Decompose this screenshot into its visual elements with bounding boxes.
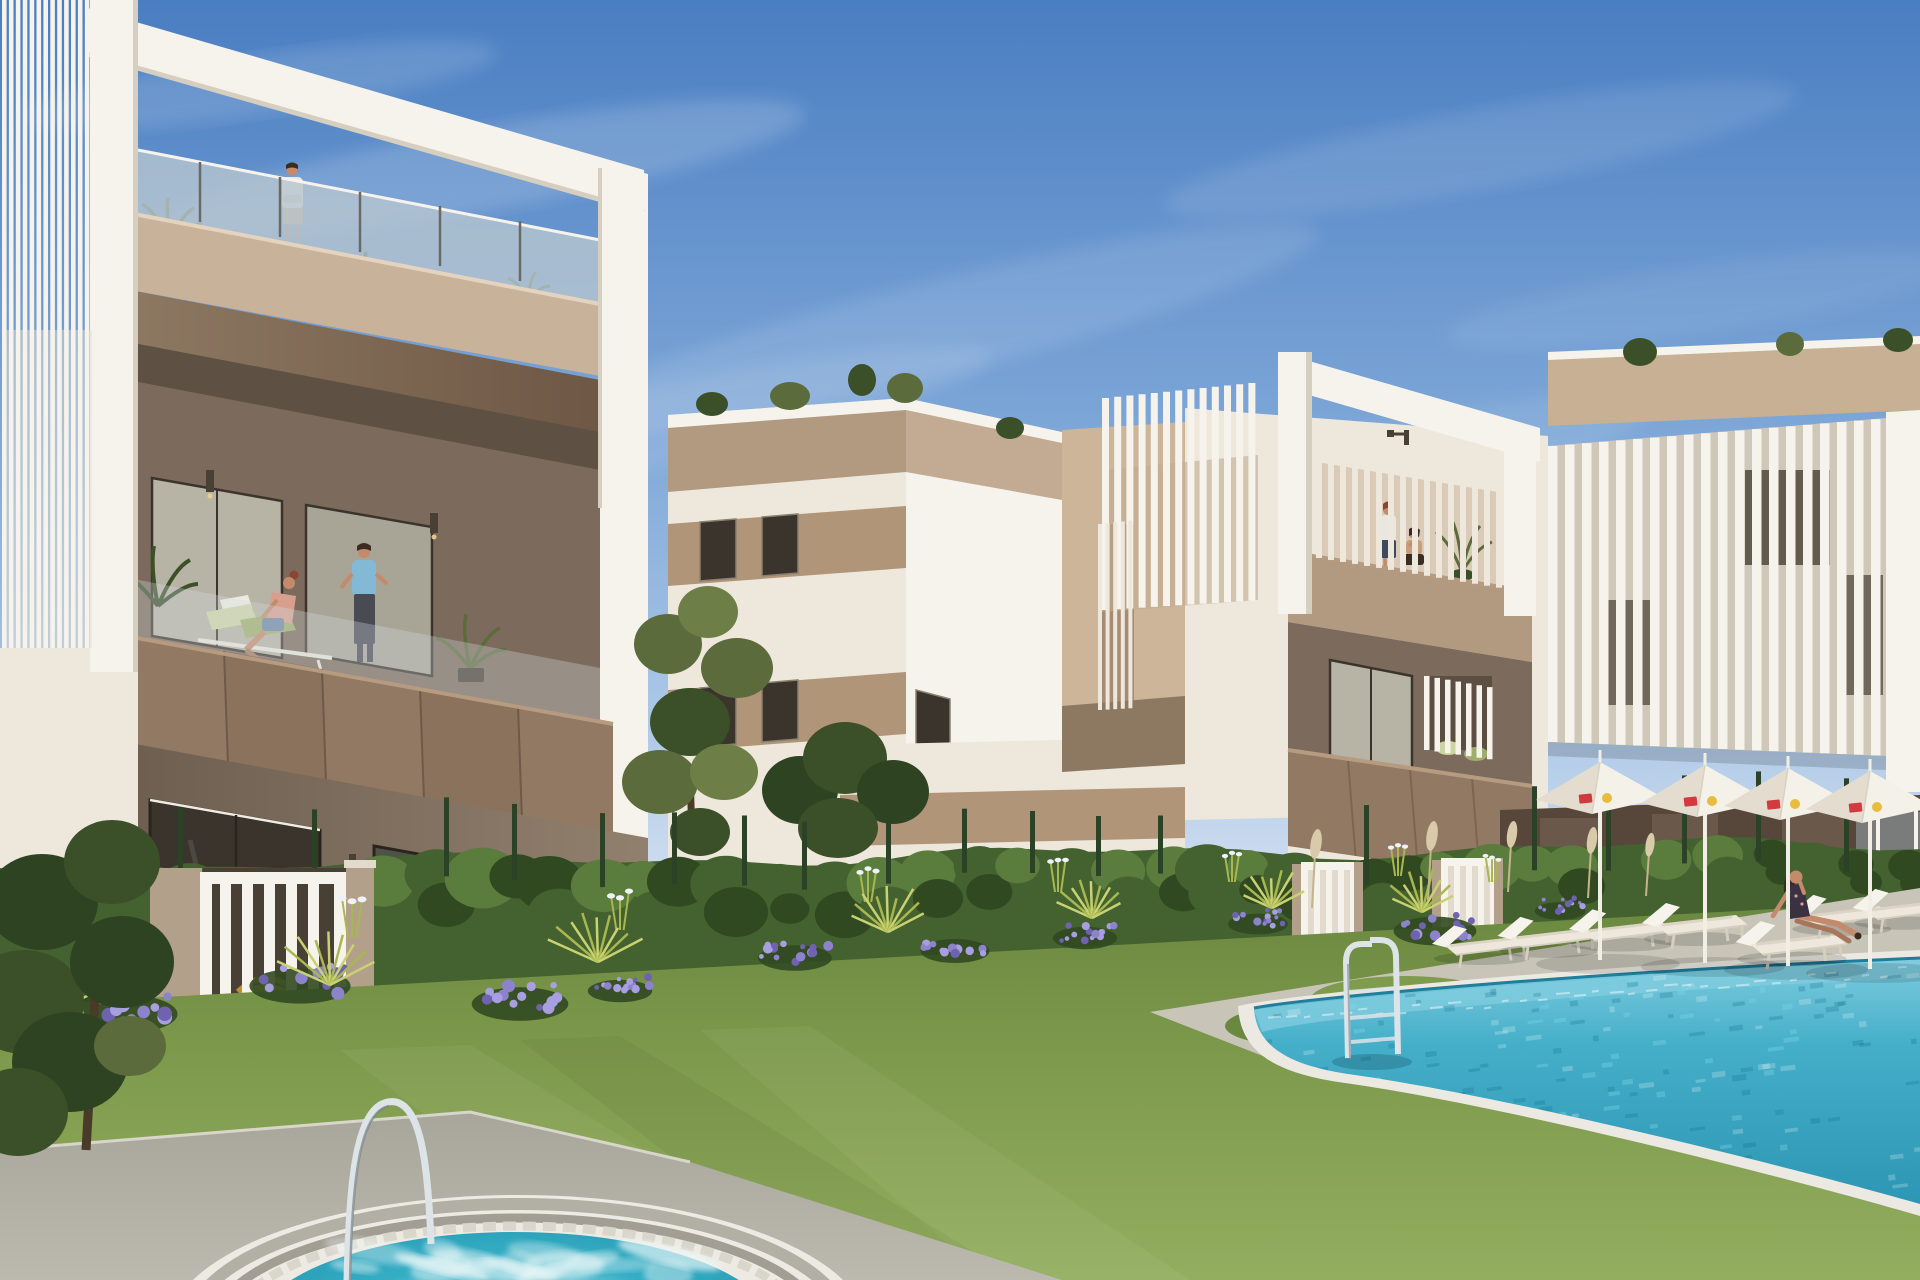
flower-blossom — [631, 985, 639, 993]
balcony-slat-column-slat — [1424, 676, 1430, 750]
building-left-slat-screen-slat — [57, 0, 62, 648]
flower-blossom — [546, 996, 557, 1007]
flower-blossom — [163, 993, 171, 1001]
garden-fence-post — [742, 815, 747, 885]
terrace-slat-screen-b-slat — [1400, 476, 1406, 572]
water-speckle — [1609, 1006, 1615, 1012]
water-speckle — [1780, 1144, 1788, 1150]
facade-slat-screen-slat — [1701, 433, 1711, 748]
grass-blade — [328, 931, 330, 985]
flower-blossom — [800, 944, 805, 949]
connector-slat-column-slat — [1106, 523, 1110, 709]
flower-blossom — [1410, 930, 1420, 940]
umbrella-logo-yellow — [1602, 793, 1612, 803]
umbrella-logo-red — [1579, 793, 1593, 803]
flower-cluster-purple — [921, 939, 990, 963]
iris-flower — [348, 898, 357, 904]
water-speckle — [1911, 1039, 1917, 1045]
umbrella-logo-yellow — [1872, 802, 1882, 812]
water-sparkle — [1448, 1002, 1461, 1003]
terrace-slat-screen-slat — [1200, 388, 1207, 604]
terrace-slat-screen-b-slat — [1496, 492, 1502, 588]
terrace-slat-screen-slat — [1248, 383, 1255, 601]
facade-slat-screen-slat — [1752, 429, 1762, 750]
flower-blossom — [1569, 899, 1573, 903]
hedge-cluster — [913, 879, 963, 918]
umbrella-finial — [1704, 753, 1707, 767]
garden-fence-post — [1532, 786, 1537, 870]
garden-fence-post — [600, 813, 605, 887]
flower-blossom — [965, 947, 974, 956]
umbrella-pole — [1598, 810, 1602, 960]
terrace-slat-screen-b-slat — [1352, 468, 1358, 564]
terrace-slat-screen-b-slat — [1328, 464, 1334, 560]
flower-blossom — [137, 1006, 150, 1019]
lounger-leg — [1881, 919, 1883, 932]
flower-blossom — [980, 950, 986, 956]
facade-slat-screen-slat — [1871, 419, 1881, 755]
water-speckle — [1491, 1020, 1499, 1026]
water-sparkle — [1304, 1016, 1310, 1017]
flower-blossom — [1272, 909, 1278, 915]
flower-blossom — [509, 1000, 517, 1008]
iris-flower — [1496, 858, 1502, 862]
flower-blossom — [259, 975, 269, 985]
water-speckle — [1859, 1021, 1867, 1028]
water-sparkle — [1538, 999, 1548, 1000]
facade-slat-screen-slat — [1582, 443, 1592, 743]
terrace-slat-screen-slat — [1163, 392, 1170, 606]
pillar-cap — [344, 860, 376, 868]
water-sparkle — [1628, 993, 1635, 994]
iris-flower — [872, 869, 879, 874]
flower-blossom — [617, 977, 621, 981]
facade-slat-screen-slat — [1667, 436, 1677, 747]
flower-blossom — [1262, 921, 1266, 925]
balcony-slat-column-slat — [1466, 683, 1472, 756]
garden-fence-post — [1158, 816, 1163, 874]
flower-blossom — [1274, 915, 1278, 919]
building-left-slat-screen-slat — [50, 0, 55, 648]
garden-fence-post — [1096, 816, 1101, 876]
water-speckle — [1668, 1014, 1674, 1018]
flower-blossom — [771, 942, 778, 949]
flower-blossom — [1091, 930, 1099, 938]
iris-flower — [856, 870, 863, 875]
umbrella-finial — [1869, 759, 1872, 773]
flower-blossom — [1266, 918, 1271, 923]
water-sparkle — [1556, 993, 1570, 994]
building-left-slat-screen-slat — [64, 0, 69, 648]
water-sparkle — [1520, 1000, 1527, 1001]
flower-blossom — [759, 954, 764, 959]
flower-blossom — [951, 949, 960, 958]
garden-fence-post — [1364, 805, 1369, 884]
flower-blossom — [550, 982, 557, 989]
flower-blossom — [1270, 923, 1276, 929]
water-speckle — [1810, 1118, 1820, 1124]
building-left-slat-screen-slat — [37, 0, 42, 648]
water-speckle — [1623, 1012, 1630, 1017]
water-speckle — [1714, 1018, 1720, 1022]
water-sparkle — [1268, 1017, 1281, 1018]
flower-blossom — [796, 952, 806, 962]
wall-sconce — [430, 513, 438, 533]
hedge-cluster — [1705, 857, 1751, 892]
facade-slat-screen-slat — [1820, 423, 1830, 753]
umbrella-pole — [1786, 816, 1790, 966]
umbrella-logo-yellow — [1790, 799, 1800, 809]
terrace-slat-screen-b-slat — [1364, 470, 1370, 566]
building-left-slat-screen-slat — [43, 0, 48, 648]
flower-blossom — [1240, 912, 1246, 918]
terrace-slat-screen-slat — [1187, 389, 1194, 604]
architectural-render — [0, 0, 1920, 1280]
flower-blossom — [613, 984, 621, 992]
flower-blossom — [1428, 914, 1437, 923]
water-sparkle — [1574, 995, 1586, 996]
building-left-slat-screen-slat — [85, 0, 90, 648]
facade-slat-screen-slat — [1718, 432, 1728, 749]
flower-blossom — [492, 993, 503, 1004]
flower-blossom — [1071, 932, 1077, 938]
iris-flower — [1222, 854, 1228, 858]
water-sparkle — [1736, 985, 1749, 986]
iris-flower — [1402, 845, 1408, 849]
facade-slat-screen-slat — [1803, 425, 1813, 753]
pergola-post — [1504, 428, 1536, 616]
grass-blade — [597, 917, 598, 962]
building-left-slat-screen-slat — [9, 0, 14, 648]
building-left-slat-screen-slat — [16, 0, 21, 648]
water-speckle — [1663, 1069, 1669, 1075]
pergola-post-shade — [1306, 352, 1312, 614]
umbrella-pole — [1868, 819, 1872, 969]
umbrella-finial — [1787, 756, 1790, 770]
water-sparkle — [1466, 1008, 1473, 1009]
water-sparkle — [1682, 985, 1691, 986]
terrace-slat-screen-b-slat — [1436, 482, 1442, 578]
water-sparkle — [1700, 986, 1708, 987]
water-speckle — [1782, 1003, 1793, 1010]
terrace-slat-screen-slat — [1139, 394, 1146, 607]
umbrella-logo-red — [1684, 796, 1698, 806]
balcony-slat-column-slat — [1445, 680, 1451, 753]
flower-blossom — [780, 941, 787, 948]
water-speckle — [1553, 1048, 1562, 1055]
connector-slat-column-slat — [1113, 522, 1117, 709]
flower-blossom — [1065, 922, 1071, 928]
flower-blossom — [1561, 898, 1565, 902]
water-sparkle — [1718, 987, 1730, 988]
flower-blossom — [1265, 908, 1270, 913]
terrace-slat-screen-slat — [1224, 385, 1231, 602]
terrace-slat-screen-b-slat — [1376, 472, 1382, 568]
facade-slat-screen-slat — [1684, 435, 1694, 748]
iris-flower — [864, 866, 871, 871]
flower-blossom — [1405, 920, 1411, 926]
balcony-slat-column-slat — [1477, 685, 1483, 757]
ladder-shadow — [1332, 1054, 1412, 1070]
facade-slat-screen-slat — [1616, 440, 1626, 744]
water-speckle — [1888, 1174, 1896, 1180]
balcony-slat-column-slat — [1487, 687, 1493, 759]
iris-flower — [1229, 851, 1235, 855]
water-speckle — [1607, 1086, 1615, 1091]
grass-blade — [887, 886, 888, 932]
facade-slat-screen-slat — [1599, 442, 1609, 744]
facade-slat-screen-slat — [1548, 446, 1558, 742]
flower-blossom — [628, 985, 633, 990]
lounger-leg — [1726, 927, 1728, 941]
hedge-cluster — [758, 864, 802, 899]
connector-slat-column-slat — [1128, 521, 1132, 709]
iris-flower — [1047, 859, 1054, 864]
flower-blossom — [1558, 904, 1561, 907]
flower-blossom — [1468, 917, 1475, 924]
flower-blossom — [1082, 922, 1090, 930]
terrace-slat-screen-slat — [1151, 393, 1158, 607]
terrace-slat-screen-b-slat — [1316, 462, 1322, 558]
terrace-slat-screen-b-slat — [1484, 490, 1490, 586]
umbrella-logo-yellow — [1707, 796, 1717, 806]
water-sparkle — [1430, 1007, 1443, 1008]
flower-blossom — [1110, 922, 1117, 929]
water-sparkle — [1646, 990, 1657, 991]
lounger-leg — [1526, 947, 1528, 960]
flower-blossom — [633, 978, 637, 982]
lounger-leg — [1460, 955, 1462, 968]
building-left-slat-screen-slat — [2, 0, 7, 648]
terrace-slat-screen-slat — [1236, 384, 1243, 601]
terrace-slat-screen-b-slat — [1448, 484, 1454, 580]
water-speckle — [1593, 1035, 1599, 1041]
iris-flower — [625, 888, 633, 893]
facade-slat-screen-slat — [1735, 431, 1745, 750]
flower-blossom — [1277, 908, 1282, 913]
umbrella-logo-red — [1767, 799, 1781, 809]
terrace-slat-screen-b-slat — [1412, 478, 1418, 574]
flower-blossom — [594, 985, 599, 990]
connector-slat-column-slat — [1098, 524, 1102, 710]
corner-column — [90, 0, 138, 672]
balcony-slat-column-slat — [1456, 682, 1462, 755]
iris-flower — [1062, 858, 1069, 863]
water-speckle — [1798, 986, 1805, 992]
garden-fence-post — [672, 812, 677, 884]
terrace-slat-screen-b-slat — [1472, 488, 1478, 584]
water-sparkle — [1592, 991, 1599, 992]
iris-flower — [607, 893, 615, 898]
facade-slat-screen-slat — [1650, 438, 1660, 747]
iris-flower — [1388, 845, 1394, 849]
flower-blossom — [1232, 912, 1239, 919]
grass-blade — [1421, 876, 1422, 912]
iris-flower — [1489, 856, 1495, 860]
flower-blossom — [527, 982, 536, 991]
facade-slat-screen-slat — [1854, 421, 1864, 755]
water-sparkle — [1772, 983, 1781, 984]
lounger-leg — [1672, 935, 1674, 949]
iris-flower — [338, 895, 347, 901]
umbrella-finial — [1599, 750, 1602, 764]
terrace-slat-screen-slat — [1175, 390, 1182, 605]
flower-blossom — [774, 955, 780, 961]
flower-blossom — [823, 941, 833, 951]
flower-blossom — [157, 1006, 171, 1020]
scene-canvas — [0, 0, 1920, 1280]
iris-flower — [1483, 854, 1489, 858]
garden-fence-post — [512, 804, 517, 880]
terrace-slat-screen-b-slat — [1460, 486, 1466, 582]
window — [762, 680, 798, 742]
balcony-slat-column-slat — [1435, 678, 1441, 752]
umbrella-pole — [1703, 813, 1707, 963]
water-speckle — [1742, 1089, 1751, 1095]
hedge-cluster — [704, 887, 768, 937]
water-speckle — [1611, 1053, 1620, 1059]
slat-screen-backing — [1548, 418, 1886, 756]
flower-blossom — [924, 940, 929, 945]
connector-slat-column-slat — [1121, 521, 1125, 708]
water-speckle — [1416, 1000, 1422, 1004]
facade-slat-screen-slat — [1565, 445, 1575, 743]
facade-slat-screen-slat — [1769, 428, 1779, 751]
flower-blossom — [1065, 936, 1070, 941]
water-speckle — [1570, 1000, 1579, 1007]
flower-blossom — [1280, 921, 1286, 927]
sconce-glow — [208, 494, 213, 499]
lounger-leg — [1824, 946, 1826, 961]
flower-blossom — [1453, 912, 1460, 919]
hedge-cluster — [1798, 863, 1845, 900]
facade-slat-screen-slat — [1786, 426, 1796, 752]
garden-fence-post — [802, 822, 807, 890]
building-left-slat-screen-slat — [92, 0, 97, 648]
terrace-slat-screen-b-slat — [1388, 474, 1394, 570]
flower-blossom — [482, 994, 492, 1004]
flower-blossom — [150, 1003, 159, 1012]
water-speckle — [1790, 1029, 1797, 1034]
flower-blossom — [1419, 922, 1426, 929]
building-left-slat-screen-slat — [30, 0, 35, 648]
water-sparkle — [1664, 984, 1678, 985]
iris-flower — [1236, 852, 1242, 856]
building-left-slat-screen-slat — [23, 0, 28, 648]
wall-sconce — [206, 470, 214, 492]
water-speckle — [1378, 1020, 1384, 1026]
water-speckle — [1656, 1091, 1665, 1098]
water-sparkle — [1610, 992, 1624, 993]
iris-flower — [616, 895, 624, 900]
flower-blossom — [1572, 895, 1577, 900]
water-speckle — [1705, 1058, 1713, 1063]
flower-blossom — [517, 992, 526, 1001]
flower-blossom — [1538, 905, 1542, 909]
flower-blossom — [1542, 908, 1546, 912]
flower-blossom — [604, 982, 612, 990]
flower-blossom — [331, 987, 344, 1000]
garden-fence-post — [962, 809, 967, 873]
water-sparkle — [1502, 1000, 1509, 1001]
hedge-cluster — [770, 893, 809, 924]
iris-flower — [1395, 843, 1401, 847]
pergola-post — [598, 166, 644, 508]
flower-blossom — [1081, 936, 1089, 944]
facade-slat-screen-slat — [1837, 422, 1847, 754]
flower-blossom — [645, 981, 654, 990]
flower-blossom — [265, 983, 274, 992]
window — [700, 519, 736, 581]
building-left-slat-screen-slat — [71, 0, 76, 648]
umbrella-logo-red — [1849, 802, 1863, 812]
flower-blossom — [1253, 917, 1261, 925]
flower-blossom — [1579, 903, 1585, 909]
water-sparkle — [1358, 1009, 1367, 1010]
terrace-slat-screen-slat — [1212, 387, 1219, 603]
terrace-slat-screen-b-slat — [1340, 466, 1346, 562]
water-sparkle — [1412, 1005, 1420, 1006]
garden-fence-post — [1030, 811, 1035, 873]
flower-blossom — [808, 948, 817, 957]
terrace-slat-screen-b-slat — [1424, 480, 1430, 576]
water-speckle — [1760, 987, 1766, 993]
lounger-shadow — [1644, 932, 1748, 946]
flower-blossom — [536, 1004, 543, 1011]
flower-blossom — [1542, 898, 1546, 902]
flower-blossom — [1059, 938, 1064, 943]
flower-blossom — [644, 973, 652, 981]
grass-blade — [1091, 881, 1092, 918]
flower-blossom — [939, 948, 945, 954]
sconce-glow — [432, 535, 437, 540]
water-speckle — [1775, 1109, 1784, 1115]
iris-flower — [358, 896, 367, 902]
water-sparkle — [1286, 1016, 1297, 1017]
column-shade — [133, 0, 138, 672]
garden-fence-post — [886, 818, 891, 884]
building-left-slat-screen-slat — [78, 0, 83, 648]
water-sparkle — [1484, 1007, 1491, 1008]
window — [762, 514, 798, 576]
water-sparkle — [1754, 980, 1766, 981]
iris-flower — [1055, 858, 1062, 863]
garden-fence-post — [444, 797, 449, 876]
facade-slat-screen-slat — [1633, 439, 1643, 746]
water-speckle — [1748, 998, 1755, 1003]
building-right-edge — [1886, 410, 1920, 792]
water-sparkle — [1322, 1014, 1334, 1015]
water-speckle — [1914, 1147, 1920, 1152]
